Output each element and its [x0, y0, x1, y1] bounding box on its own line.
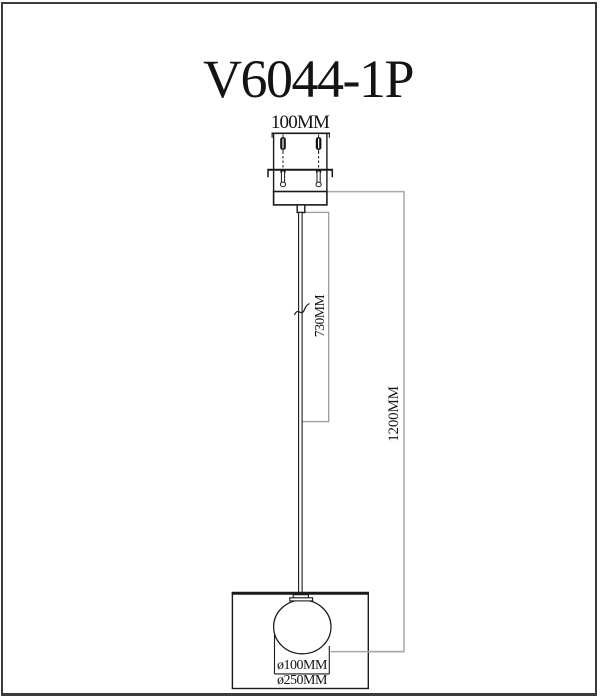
mount-width-label: 100MM	[245, 113, 355, 132]
wall-anchor-right	[316, 135, 322, 169]
stem-connector	[297, 205, 305, 213]
glass-globe	[274, 600, 331, 654]
wall-anchor-left	[280, 135, 286, 169]
ceiling-canopy	[274, 192, 327, 205]
suspension-rod	[299, 212, 303, 592]
overall-height-label: 1200MM	[387, 364, 403, 464]
screw-right	[316, 170, 321, 186]
globe-diameter-label: ø100MM	[275, 659, 329, 673]
shade-diameter-label: ø250MM	[275, 674, 329, 688]
screw-left	[280, 170, 285, 186]
rod-length-label: 730MM	[313, 271, 329, 361]
lamp-technical-drawing: V6044-1P 100MM 730MM 1200MM ø100MM ø250M…	[0, 0, 600, 700]
product-code-title: V6044-1P	[153, 52, 463, 106]
mounting-bar-hooks	[268, 170, 332, 178]
